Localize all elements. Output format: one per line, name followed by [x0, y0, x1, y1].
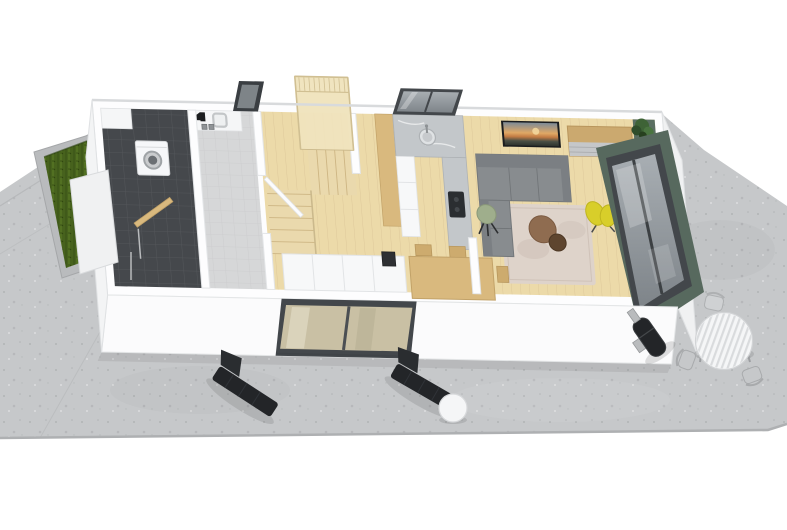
bathroom-vanity	[193, 110, 243, 131]
kitchen-window	[393, 88, 463, 115]
bath-control	[202, 124, 207, 129]
tv-picture	[501, 121, 561, 148]
square-basin	[213, 114, 227, 127]
stair-landing	[295, 76, 354, 150]
bath-control	[209, 124, 214, 129]
washing-machine	[135, 141, 170, 176]
floor-plan-render	[0, 0, 787, 530]
dining-table	[409, 256, 495, 300]
sliding-door	[276, 299, 417, 359]
cooktop	[448, 191, 466, 217]
stair-flight-lower	[267, 190, 316, 255]
terrace-blotch	[450, 378, 670, 422]
side-table	[439, 394, 467, 424]
rug	[500, 203, 596, 285]
utility-counter	[101, 108, 133, 129]
dining-chair	[415, 245, 432, 256]
dining-chair	[497, 266, 509, 282]
dining-chair	[449, 246, 466, 257]
black-chair	[382, 252, 396, 266]
front-wall	[98, 295, 678, 373]
